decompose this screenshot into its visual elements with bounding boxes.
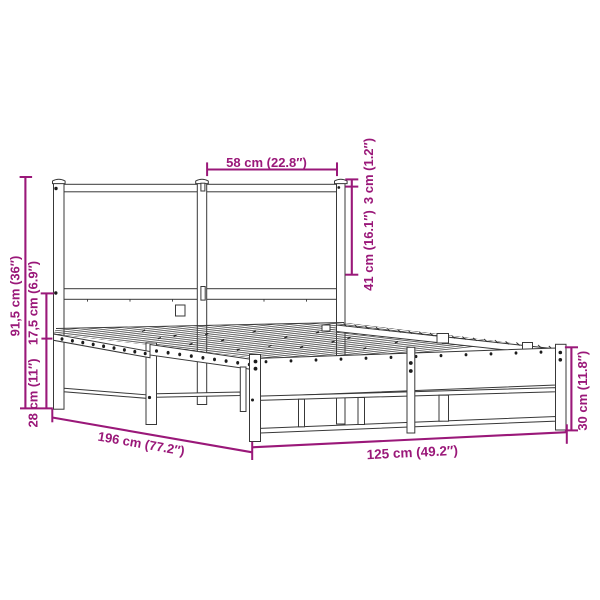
svg-text:30 cm (11.8″): 30 cm (11.8″) <box>575 351 590 431</box>
svg-text:17,5 cm (6.9″): 17,5 cm (6.9″) <box>26 261 41 345</box>
svg-text:28 cm (11″): 28 cm (11″) <box>26 358 41 427</box>
svg-text:58 cm (22.8″): 58 cm (22.8″) <box>226 155 307 170</box>
svg-text:41 cm (16.1″): 41 cm (16.1″) <box>361 210 376 291</box>
svg-text:3 cm (1.2″): 3 cm (1.2″) <box>361 138 376 204</box>
svg-text:91,5 cm (36″): 91,5 cm (36″) <box>8 256 23 337</box>
